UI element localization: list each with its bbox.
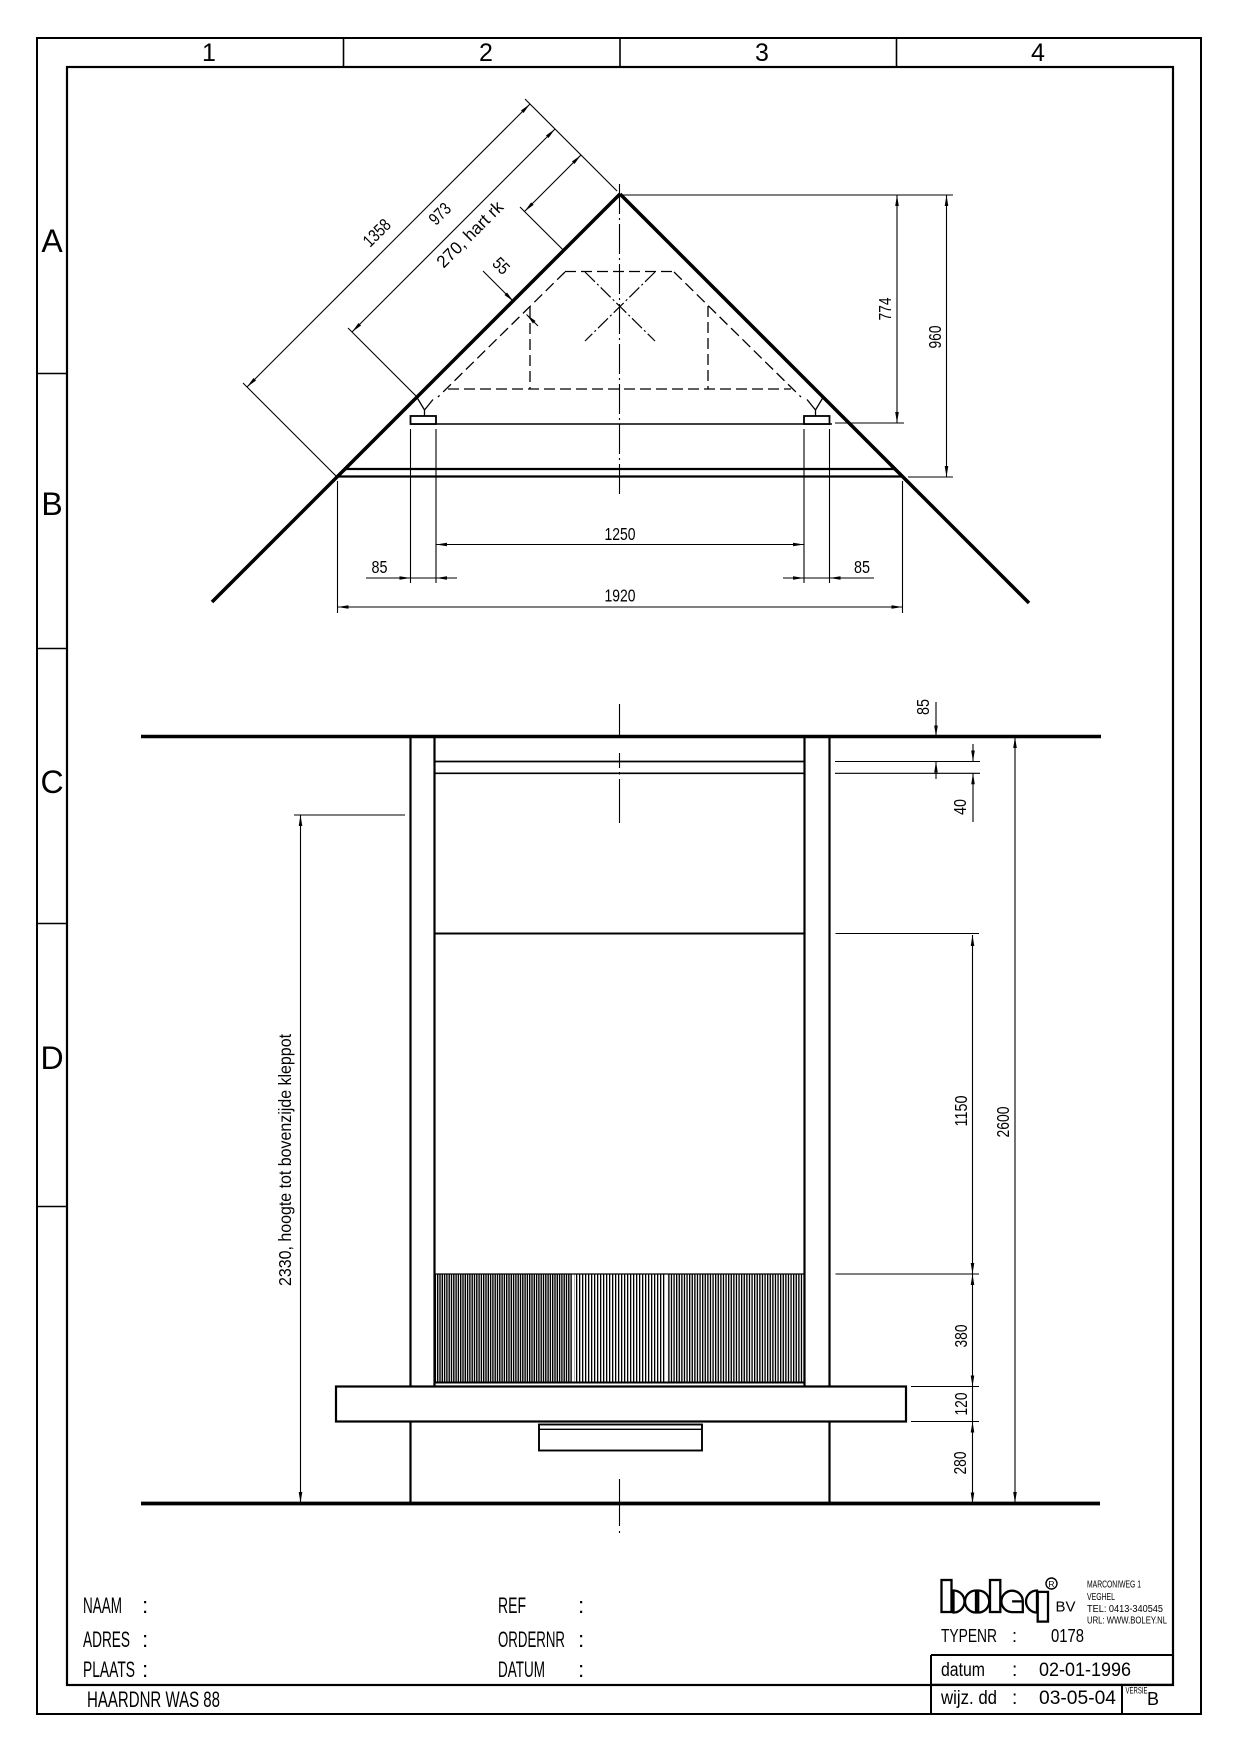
svg-text:VEGHEL: VEGHEL [1087, 1592, 1115, 1603]
svg-text:40: 40 [950, 799, 970, 815]
svg-text:DATUM: DATUM [498, 1657, 545, 1682]
svg-text::: : [142, 1593, 148, 1618]
svg-text:wijz. dd: wijz. dd [940, 1688, 997, 1709]
svg-text:2330, hoogte tot bovenzijde kl: 2330, hoogte tot bovenzijde kleppot [275, 1034, 295, 1286]
svg-text::: : [1012, 1688, 1017, 1709]
svg-text::: : [142, 1657, 148, 1682]
svg-text:0178: 0178 [1051, 1626, 1084, 1646]
svg-text:ADRES: ADRES [83, 1627, 130, 1652]
svg-text:BV: BV [1056, 1600, 1076, 1616]
svg-text:1150: 1150 [951, 1095, 971, 1126]
svg-text::: : [1012, 1660, 1017, 1681]
svg-text:URL: WWW.BOLEY.NL: URL: WWW.BOLEY.NL [1087, 1615, 1167, 1626]
svg-text:1250: 1250 [605, 524, 636, 544]
svg-text:380: 380 [951, 1324, 971, 1347]
svg-text:2600: 2600 [993, 1106, 1013, 1137]
svg-text:4: 4 [1031, 39, 1045, 67]
svg-text::: : [578, 1627, 584, 1652]
svg-text:1: 1 [202, 39, 216, 67]
svg-text:TYPENR: TYPENR [941, 1626, 997, 1646]
svg-text:85: 85 [854, 557, 870, 577]
svg-text:MARCONIWEG 1: MARCONIWEG 1 [1087, 1580, 1141, 1591]
svg-text:VERSIE: VERSIE [1126, 1686, 1148, 1696]
svg-text:02-01-1996: 02-01-1996 [1039, 1660, 1131, 1681]
svg-text:ORDERNR: ORDERNR [498, 1627, 565, 1652]
svg-text:PLAATS: PLAATS [83, 1657, 135, 1682]
svg-text:960: 960 [925, 325, 945, 348]
svg-text:D: D [40, 1040, 63, 1076]
svg-text:03-05-04: 03-05-04 [1039, 1688, 1116, 1709]
svg-text:A: A [41, 223, 63, 259]
svg-text::: : [578, 1657, 584, 1682]
svg-text:B: B [41, 486, 62, 522]
svg-text:1920: 1920 [605, 586, 636, 606]
svg-text:2: 2 [479, 39, 493, 67]
svg-text:85: 85 [372, 557, 388, 577]
svg-text:TEL: 0413-340545: TEL: 0413-340545 [1087, 1604, 1163, 1615]
svg-text:HAARDNR WAS 88: HAARDNR WAS 88 [87, 1687, 220, 1712]
svg-text:B: B [1147, 1689, 1159, 1709]
svg-text:NAAM: NAAM [83, 1593, 122, 1618]
svg-text::: : [142, 1627, 148, 1652]
svg-text:REF: REF [498, 1593, 526, 1618]
svg-text:774: 774 [875, 297, 895, 320]
svg-text:datum: datum [941, 1660, 985, 1681]
svg-text:R: R [1048, 1579, 1054, 1589]
svg-text:120: 120 [951, 1392, 971, 1415]
svg-text:C: C [40, 764, 63, 800]
svg-text:3: 3 [755, 39, 769, 67]
svg-text:280: 280 [950, 1451, 970, 1474]
svg-text::: : [1012, 1626, 1017, 1646]
svg-text:85: 85 [913, 699, 933, 715]
svg-text::: : [578, 1593, 584, 1618]
